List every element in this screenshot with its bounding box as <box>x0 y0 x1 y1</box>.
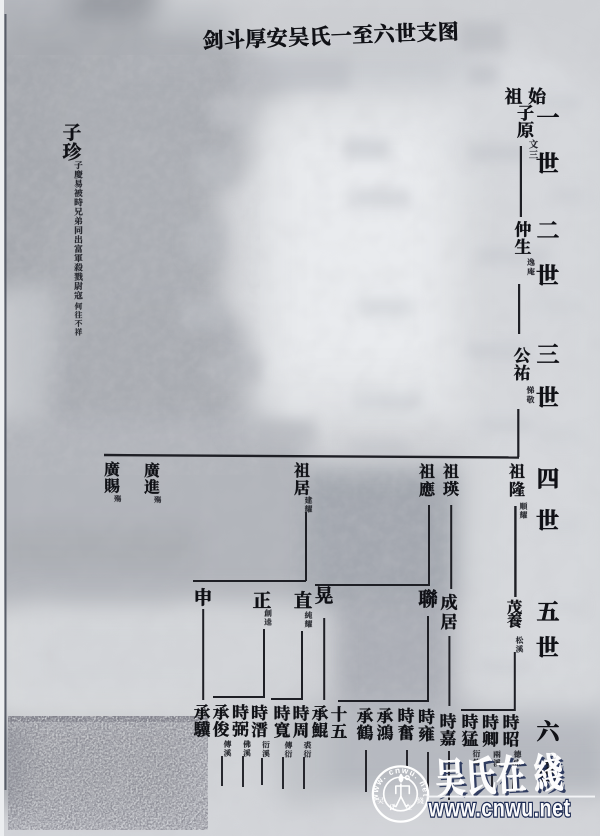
svg-text:www.cnwu.net: www.cnwu.net <box>428 794 571 822</box>
